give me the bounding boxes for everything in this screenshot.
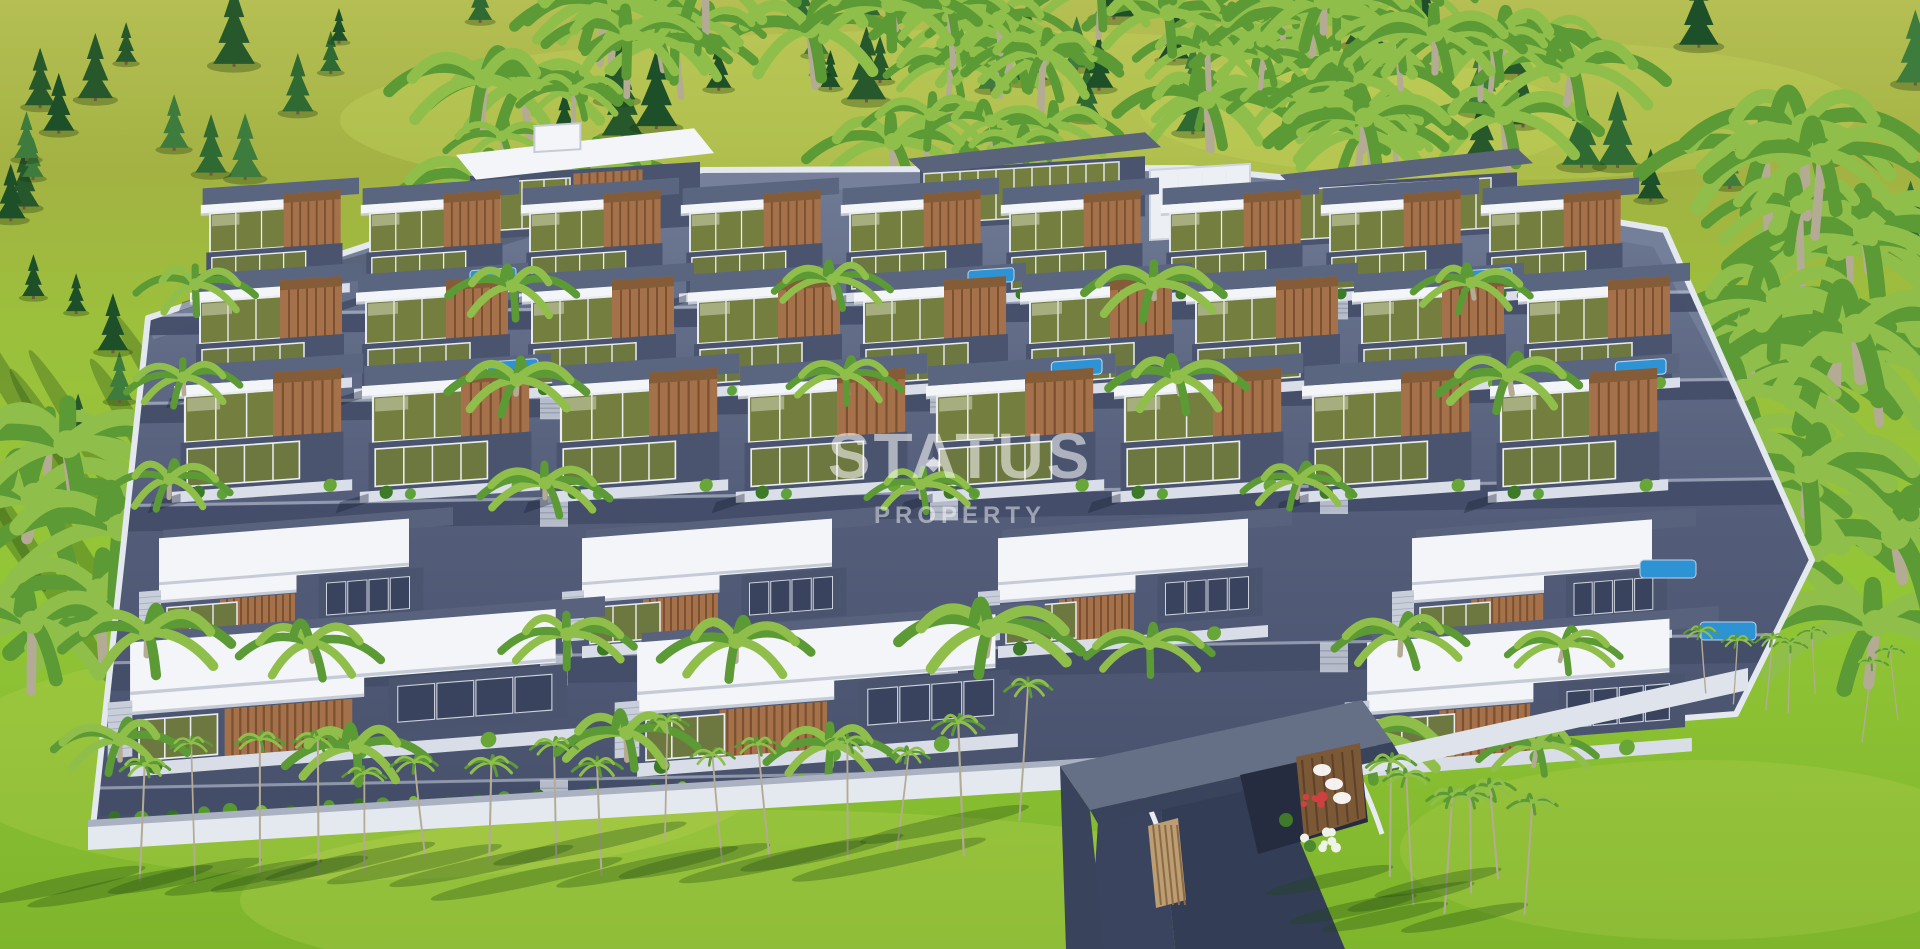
scene-canvas [0, 0, 1920, 949]
aerial-render-villa-complex: STATUS PROPERTY [0, 0, 1920, 949]
gate-sign-lights [1313, 764, 1331, 776]
shrub [1303, 794, 1310, 801]
shrub [1327, 828, 1335, 836]
shrub [1301, 801, 1307, 807]
shrub [1313, 795, 1320, 802]
shrub [1318, 801, 1325, 808]
gate-sign-lights [1325, 778, 1343, 790]
shrub [1318, 844, 1327, 853]
shrub [1279, 813, 1293, 827]
swimming-pool [1640, 560, 1696, 578]
gate-sign-lights [1333, 792, 1351, 804]
swimming-pool [1700, 622, 1756, 640]
shrub [1304, 840, 1316, 852]
shrub [1327, 837, 1336, 846]
